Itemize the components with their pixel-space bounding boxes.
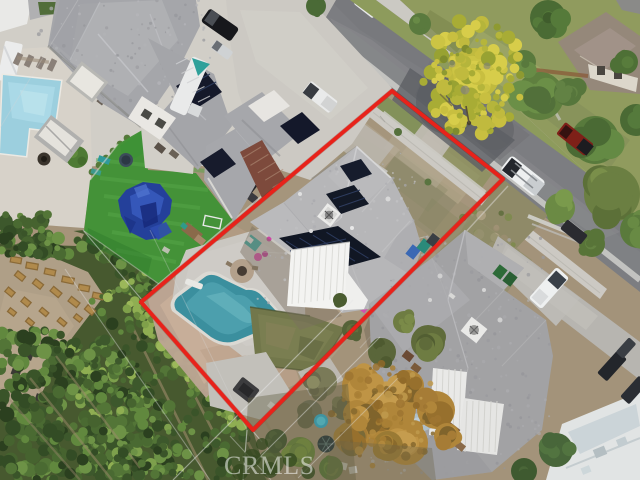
- svg-text:CRMLS: CRMLS: [224, 451, 315, 480]
